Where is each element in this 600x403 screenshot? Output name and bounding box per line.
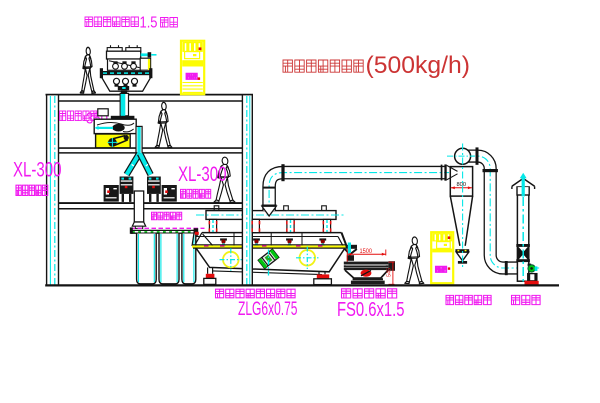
svg-text:1.5: 1.5 — [140, 15, 158, 32]
svg-text:XL-300: XL-300 — [13, 159, 62, 182]
svg-text:1500: 1500 — [360, 249, 373, 255]
svg-text:FS0.6x1.5: FS0.6x1.5 — [337, 299, 405, 321]
svg-text:XL-300: XL-300 — [178, 163, 227, 186]
svg-text:545: 545 — [387, 268, 393, 277]
svg-text:ZLG6x0.75: ZLG6x0.75 — [238, 299, 298, 320]
svg-text:(500kg/h): (500kg/h) — [366, 52, 471, 79]
